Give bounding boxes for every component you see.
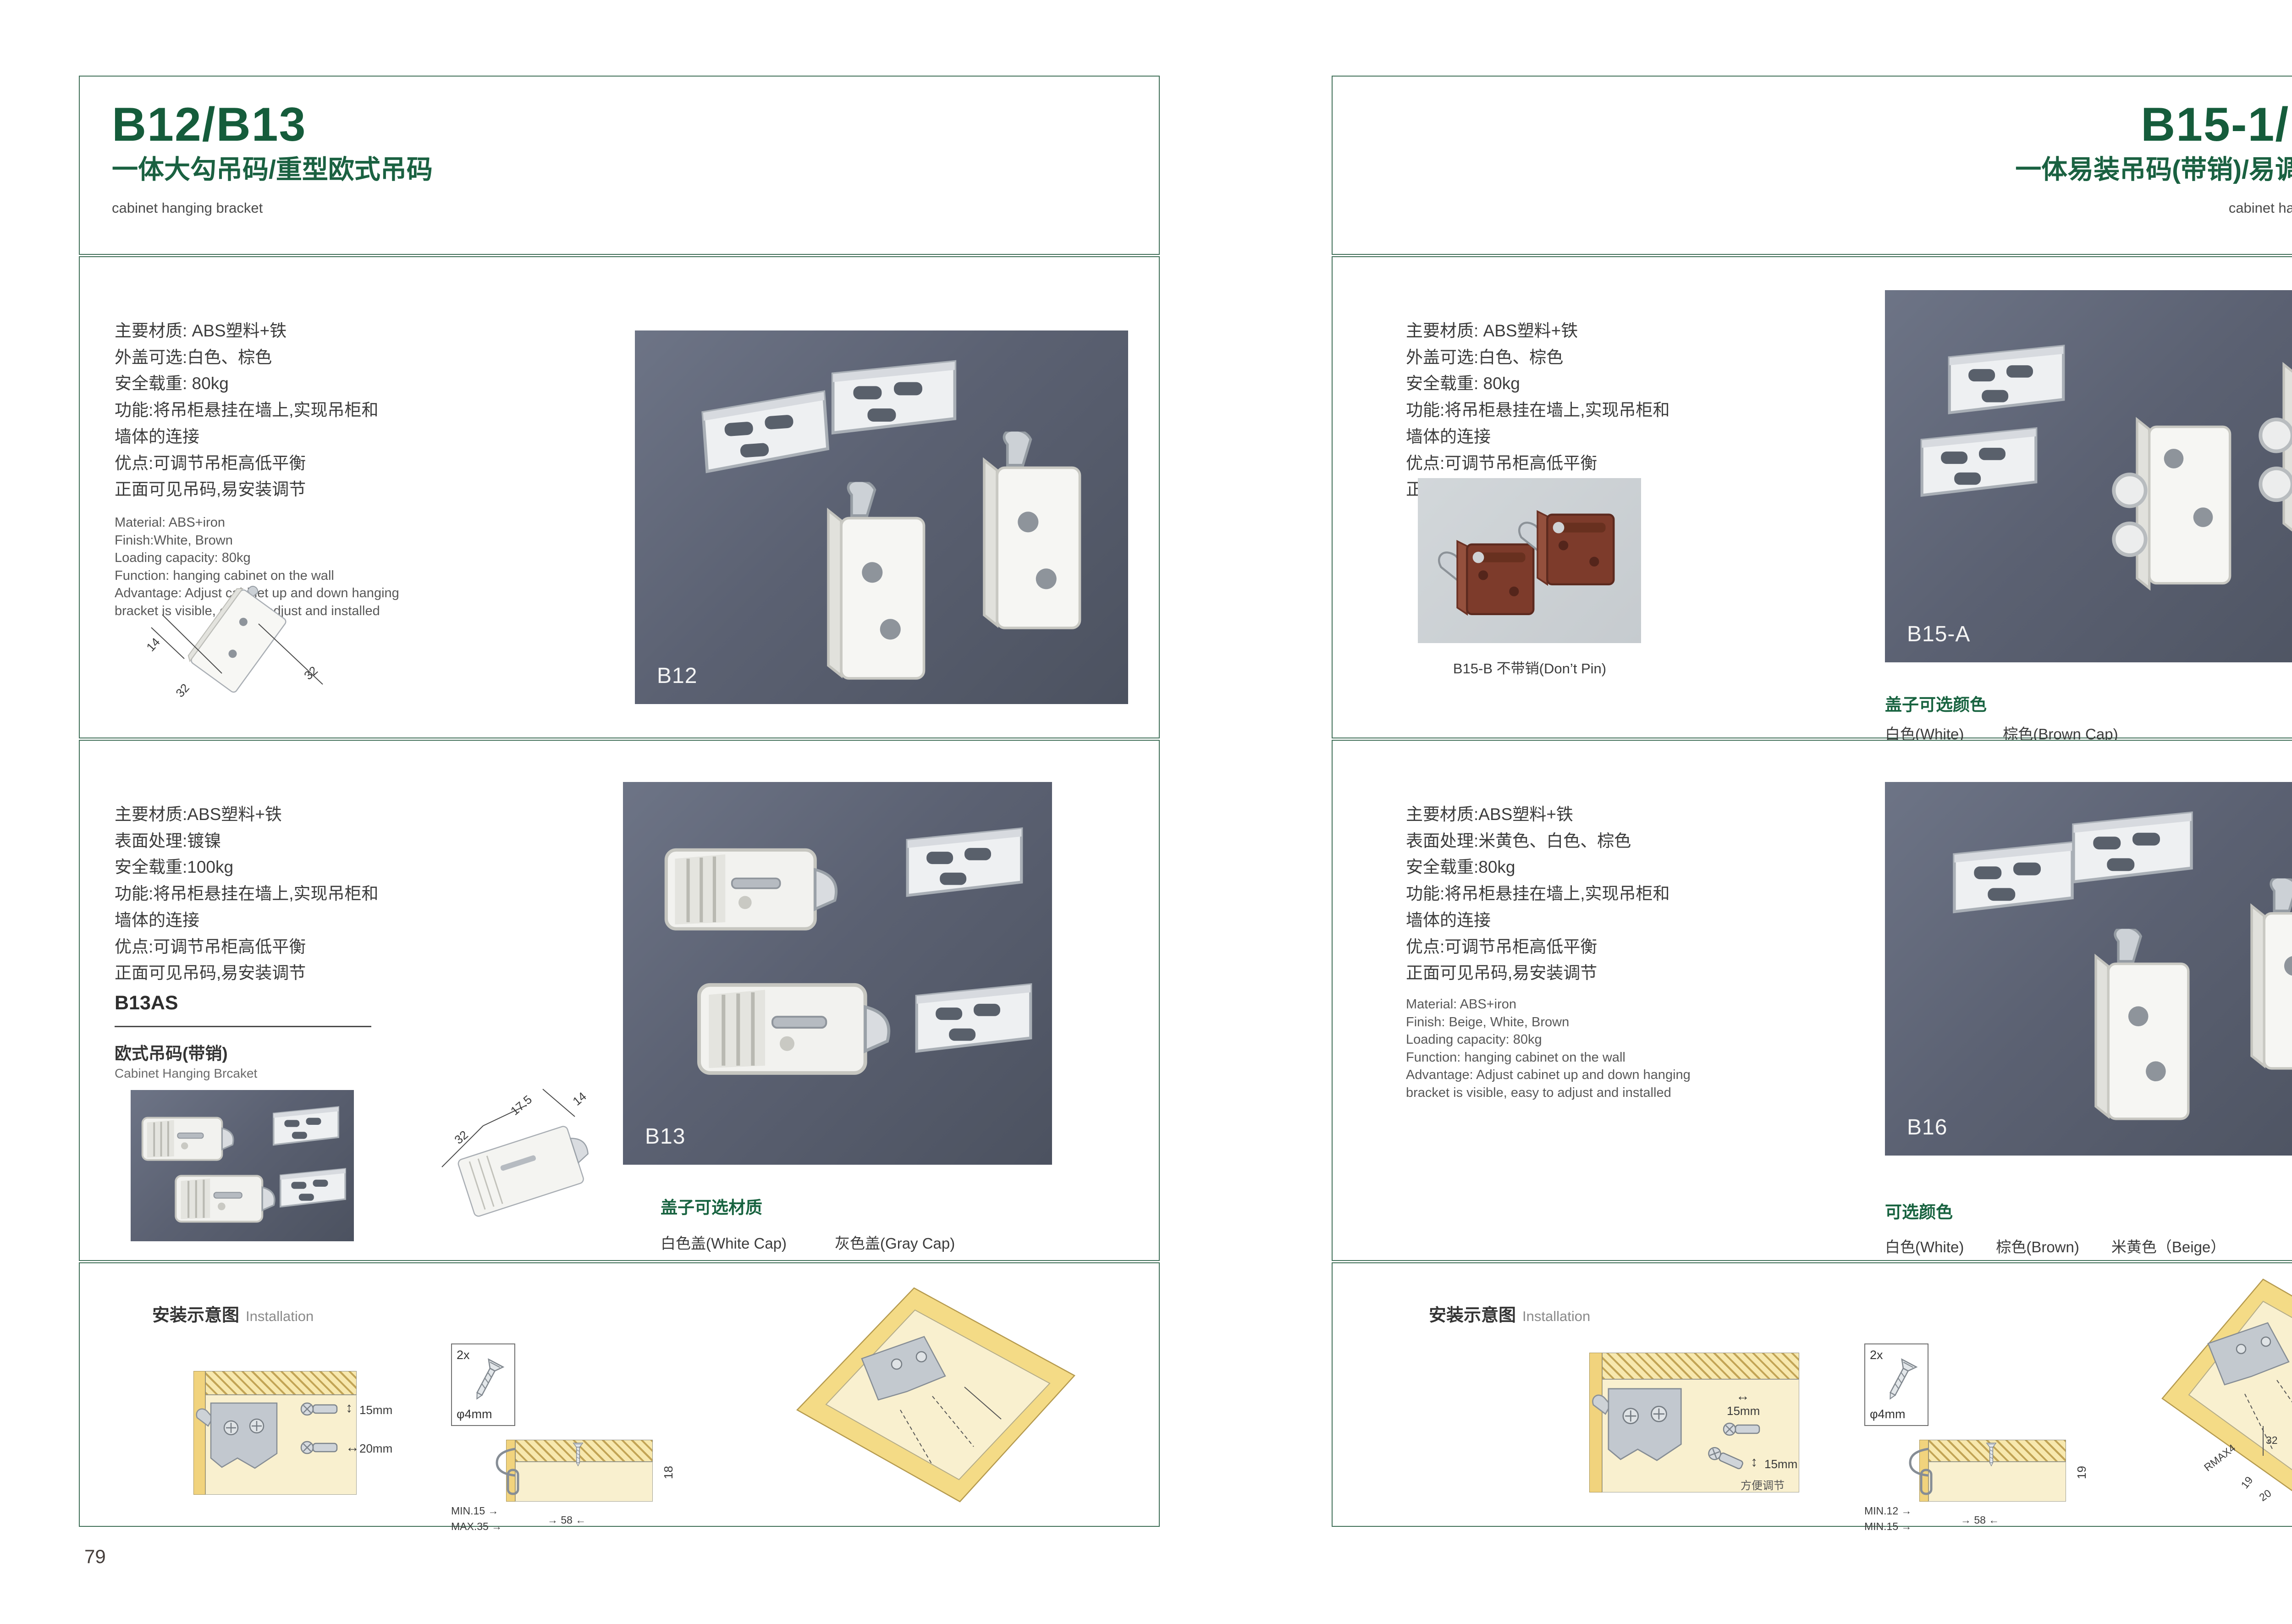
rail-icon [1912, 423, 2045, 503]
installation-title: 安装示意图Installation [1429, 1301, 1590, 1326]
dim-min: MIN.15 → [451, 1505, 499, 1517]
screw-icon [1877, 1354, 1923, 1407]
page-title: B15-1/B16 [1365, 100, 2292, 149]
h-arrow-icon: ↔ [346, 1440, 359, 1455]
b13as-dimension-diagram: 32 17.5 14 [428, 1062, 625, 1245]
rail-icon [898, 823, 1031, 903]
b15b-caption: B15-B 不带销(Don’t Pin) [1401, 657, 1658, 677]
installation-title-en: Installation [1522, 1308, 1590, 1324]
cap-option: 白色盖(White Cap) [661, 1231, 787, 1253]
dowel-screw-icon [300, 1401, 341, 1417]
b13-cap-options: 白色盖(White Cap)灰色盖(Gray Cap) [661, 1231, 955, 1253]
rail-icon [268, 1104, 344, 1149]
right-page: B15-1/B16 一体易装吊码(带销)/易调节吊码 cabinet hangi… [1332, 0, 2292, 1624]
b13-specs-cn: 主要材质:ABS塑料+铁 表面处理:镀镍 安全载重:100kg 功能:将吊柜悬挂… [115, 801, 610, 986]
bracket-icon [2100, 405, 2247, 600]
open-bracket-icon [172, 1166, 286, 1229]
dim-depth-18: 18 [661, 1466, 676, 1479]
r-arrow-icon: → [491, 1520, 502, 1532]
rail-icon [1940, 341, 2073, 420]
dim-58: → 58 ← [1961, 1514, 1999, 1526]
dim-min15: MIN.15 → [1864, 1520, 1912, 1533]
rail-icon [907, 979, 1040, 1059]
cap-option: 白色(White) [1885, 1235, 1964, 1257]
bracket-icon [2224, 878, 2292, 1079]
wall-bracket-icon [1591, 1385, 1687, 1486]
cap-option: 棕色(Brown) [1996, 1235, 2079, 1257]
screw-icon [464, 1354, 510, 1407]
install-drawing-3d: 30 32 RMAX4 19 20 32 [2112, 1275, 2292, 1513]
dim-15mm-v: 15mm [1764, 1457, 1797, 1471]
b13-photo-label: B13 [645, 1124, 685, 1149]
b15a-product-photo: B15-A [1885, 290, 2292, 662]
left-page: B12/B13 一体大勾吊码/重型欧式吊码 cabinet hanging br… [79, 0, 1160, 1624]
h-arrow-icon: ↔ [1736, 1388, 1750, 1404]
adjust-note: 方便调节 [1741, 1476, 1785, 1492]
rail-icon [823, 356, 965, 441]
b15-cap-title: 盖子可选颜色 [1885, 691, 1987, 716]
page-number: 79 [84, 1546, 106, 1568]
install-drawing-wall: 2x φ4mm 18 MIN.15 → MAX.35 → → 58 ← [433, 1307, 689, 1518]
b15-specs-cn: 主要材质: ABS塑料+铁 外盖可选:白色、棕色 安全载重: 80kg 功能:将… [1406, 318, 1883, 503]
cabinet-top-hatch [205, 1371, 357, 1395]
screw-icon [1983, 1436, 1999, 1472]
r-arrow-icon: → [1961, 1514, 1971, 1526]
screw-count: 2x [457, 1348, 470, 1362]
right-installation-section: 安装示意图Installation ↔ 15mm ↕ 15mm 方便调节 2x … [1332, 1262, 2292, 1527]
right-header-box: B15-1/B16 一体易装吊码(带销)/易调节吊码 cabinet hangi… [1332, 76, 2292, 255]
b15-section: 主要材质: ABS塑料+铁 外盖可选:白色、棕色 安全载重: 80kg 功能:将… [1332, 256, 2292, 738]
b16-specs-en: Material: ABS+iron Finish: Beige, White,… [1406, 996, 1910, 1101]
b13-section: 主要材质:ABS塑料+铁 表面处理:镀镍 安全载重:100kg 功能:将吊柜悬挂… [79, 740, 1160, 1261]
wall-bracket-icon [195, 1399, 282, 1491]
rail-icon [1945, 837, 2082, 919]
install-drawing-side: ↕ 15mm ↔ 20mm [193, 1371, 400, 1499]
hanging-hook-icon [492, 1444, 524, 1499]
b12-specs-cn: 主要材质: ABS塑料+铁 外盖可选:白色、棕色 安全载重: 80kg 功能:将… [115, 318, 610, 503]
dim-20mm: 20mm [359, 1442, 392, 1456]
open-bracket-icon [692, 965, 912, 1088]
dim-max: MAX.35 → [451, 1520, 502, 1533]
screw-diameter: φ4mm [457, 1407, 492, 1421]
install-drawing-side: ↔ 15mm ↕ 15mm 方便调节 [1589, 1353, 1818, 1499]
install-drawing-wall: 2x φ4mm 19 MIN.12 → MIN.15 → → 58 ← [1846, 1307, 2103, 1518]
cap-option: 米黄色（Beige） [2111, 1235, 2226, 1257]
b16-product-photo: B16 [1885, 782, 2292, 1156]
b15a-photo-label: B15-A [1907, 622, 1970, 647]
screw-diameter: φ4mm [1870, 1407, 1906, 1421]
l-arrow-icon: ← [575, 1514, 586, 1526]
bracket-icon [2068, 929, 2206, 1129]
b12-product-photo: B12 [635, 330, 1128, 704]
rail-icon [275, 1166, 351, 1211]
dim-min12: MIN.12 → [1864, 1505, 1912, 1517]
page-caption-en: cabinet hanging bracket [112, 201, 1127, 215]
screw-spec-box: 2x φ4mm [451, 1343, 515, 1426]
b16-section: 主要材质:ABS塑料+铁 表面处理:米黄色、白色、棕色 安全载重:80kg 功能… [1332, 740, 2292, 1261]
left-header-box: B12/B13 一体大勾吊码/重型欧式吊码 cabinet hanging br… [79, 76, 1160, 255]
b12-section: 主要材质: ABS塑料+铁 外盖可选:白色、棕色 安全载重: 80kg 功能:将… [79, 256, 1160, 738]
screw-spec-box: 2x φ4mm [1864, 1343, 1928, 1426]
brown-bracket-icon [1516, 503, 1622, 594]
open-bracket-icon [139, 1108, 244, 1167]
catalog-spread: { "icons": { "dim_arrow_v": "↕", "dim_ar… [0, 0, 2292, 1624]
l-arrow-icon: ← [1989, 1514, 1999, 1526]
b13as-desc-en: Cabinet Hanging Brcaket [115, 1066, 257, 1081]
page-caption-en: cabinet hanging bracket [1365, 201, 2292, 215]
r-arrow-icon: → [1901, 1505, 1912, 1517]
install-drawing-3d [717, 1282, 1084, 1515]
cabinet-3d-art [717, 1282, 1084, 1515]
b12-dimension-diagram: 14 32 32 [107, 569, 364, 734]
bracket-icon [956, 431, 1098, 639]
left-installation-section: 安装示意图Installation ↕ 15mm ↔ 20mm 2x φ4mm [79, 1262, 1160, 1527]
b16-cap-title: 可选颜色 [1885, 1198, 1953, 1223]
installation-title: 安装示意图Installation [152, 1301, 314, 1326]
b13-product-photo: B13 [623, 782, 1052, 1165]
v-arrow-icon: ↕ [346, 1400, 353, 1416]
b13as-model-code: B13AS [115, 992, 178, 1014]
dowel-screw-icon [1722, 1421, 1763, 1437]
installation-title-cn: 安装示意图 [1429, 1306, 1516, 1325]
cabinet-3d-art [2112, 1275, 2292, 1513]
v-arrow-icon: ↕ [1751, 1454, 1758, 1470]
r-arrow-icon: → [547, 1514, 558, 1526]
rail-icon [2064, 807, 2201, 890]
dowel-screw-icon [300, 1440, 341, 1455]
installation-title-en: Installation [246, 1308, 314, 1324]
divider-rule [115, 1026, 371, 1027]
r-arrow-icon: → [488, 1505, 499, 1517]
page-subtitle: 一体易装吊码(带销)/易调节吊码 [1365, 155, 2292, 184]
bracket-icon [800, 482, 942, 689]
b16-specs-cn: 主要材质:ABS塑料+铁 表面处理:米黄色、白色、棕色 安全载重:80kg 功能… [1406, 801, 1883, 986]
dim-58: → 58 ← [547, 1514, 586, 1526]
b13as-product-photo [131, 1090, 354, 1241]
installation-title-cn: 安装示意图 [152, 1306, 239, 1325]
b16-photo-label: B16 [1907, 1115, 1947, 1140]
cap-option: 灰色盖(Gray Cap) [835, 1231, 955, 1253]
b12-photo-label: B12 [657, 663, 697, 688]
page-title: B12/B13 [112, 100, 1127, 149]
b13-cap-title: 盖子可选材质 [661, 1194, 762, 1218]
dim-32a: 32 [2266, 1434, 2278, 1447]
dim-15mm-h: 15mm [1727, 1404, 1760, 1418]
screw-icon [570, 1436, 586, 1472]
bracket-icon [2247, 350, 2292, 545]
hanging-hook-icon [1906, 1444, 1938, 1499]
b13as-diagram-art [428, 1062, 625, 1245]
b13as-desc-cn: 欧式吊码(带销) [115, 1040, 228, 1064]
rail-icon [694, 390, 837, 475]
b12-diagram-art [107, 569, 364, 734]
dim-depth-19: 19 [2075, 1466, 2089, 1479]
cabinet-top-hatch [1602, 1353, 1799, 1379]
r-arrow-icon: → [1901, 1520, 1912, 1532]
open-bracket-icon [660, 832, 857, 942]
screw-count: 2x [1870, 1348, 1883, 1362]
dim-15mm: 15mm [359, 1403, 392, 1417]
b16-cap-options: 白色(White)棕色(Brown)米黄色（Beige） [1885, 1235, 2226, 1257]
page-subtitle: 一体大勾吊码/重型欧式吊码 [112, 155, 1127, 184]
b15b-product-photo [1418, 478, 1641, 643]
